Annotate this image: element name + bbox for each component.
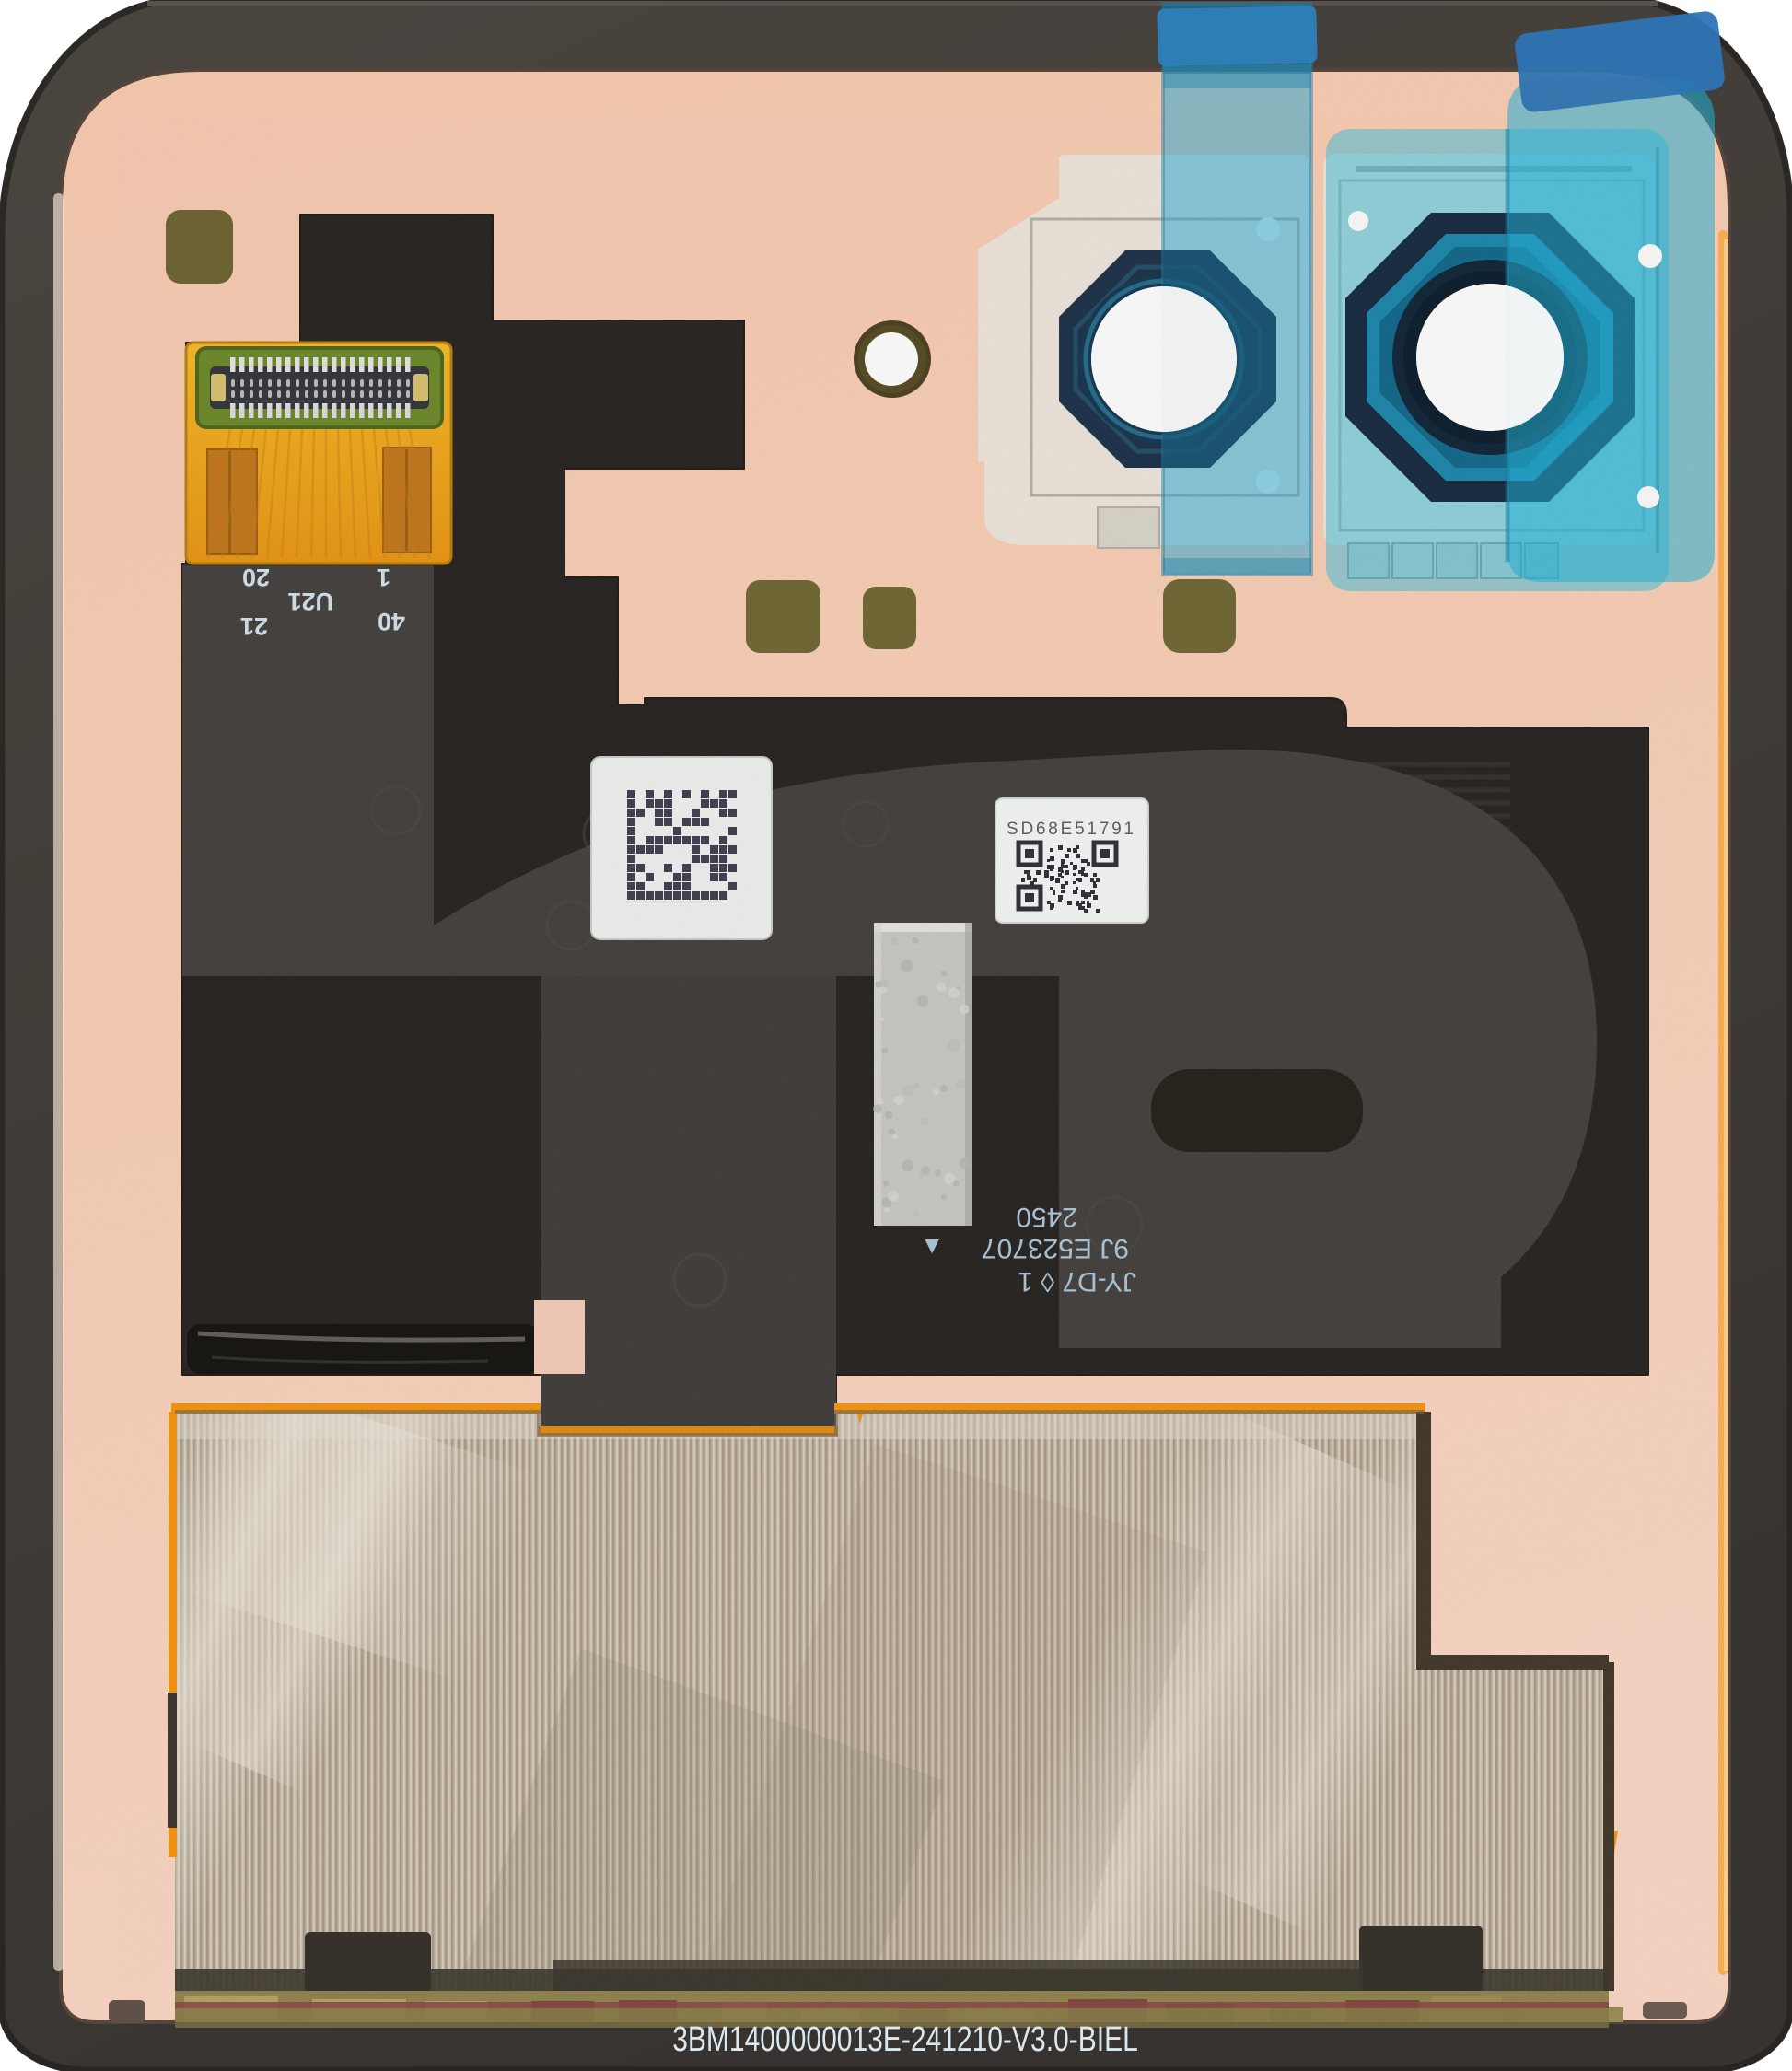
svg-text:3BM1400000013E-241210-V3.0-BIE: 3BM1400000013E-241210-V3.0-BIEL — [672, 2020, 1138, 2059]
